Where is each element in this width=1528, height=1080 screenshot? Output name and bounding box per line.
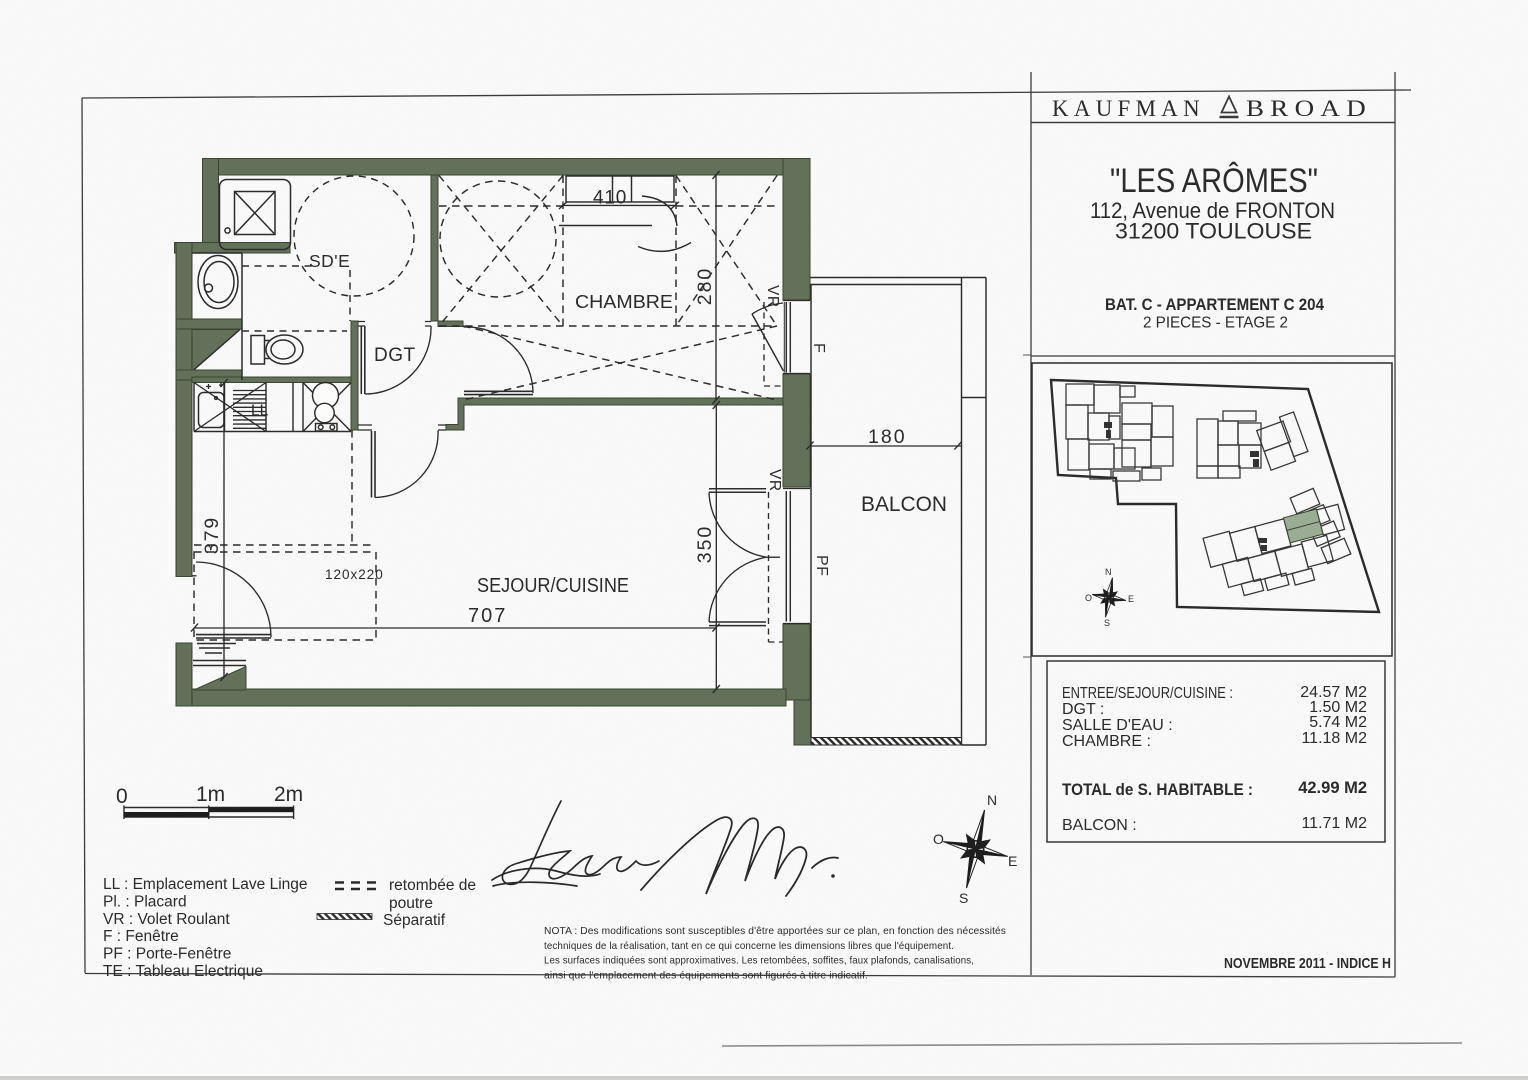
svg-text:11.18 M2: 11.18 M2 bbox=[1301, 730, 1367, 747]
svg-text:VR: VR bbox=[766, 469, 783, 492]
svg-text:350: 350 bbox=[694, 525, 716, 564]
svg-text:707: 707 bbox=[468, 605, 507, 627]
svg-text:NOVEMBRE 2011 - INDICE H: NOVEMBRE 2011 - INDICE H bbox=[1224, 955, 1391, 972]
svg-text:TE : Tableau Electrique: TE : Tableau Electrique bbox=[103, 963, 263, 980]
svg-text:O: O bbox=[933, 831, 944, 847]
svg-text:PF : Porte-Fenêtre: PF : Porte-Fenêtre bbox=[103, 946, 231, 963]
svg-text:379: 379 bbox=[201, 516, 223, 555]
svg-text:E: E bbox=[1008, 853, 1017, 869]
svg-text:retombée de: retombée de bbox=[389, 877, 476, 894]
svg-text:Séparatif: Séparatif bbox=[383, 912, 446, 929]
svg-text:ENTREE/SEJOUR/CUISINE :: ENTREE/SEJOUR/CUISINE : bbox=[1062, 685, 1233, 702]
svg-text:280: 280 bbox=[694, 267, 716, 306]
svg-text:LL: LL bbox=[251, 403, 269, 420]
svg-text:CHAMBRE :: CHAMBRE : bbox=[1062, 733, 1151, 750]
svg-text:SALLE D'EAU :: SALLE D'EAU : bbox=[1062, 717, 1173, 734]
svg-text:120x220: 120x220 bbox=[325, 567, 384, 582]
svg-text:PF: PF bbox=[813, 555, 830, 576]
svg-text:31200 TOULOUSE: 31200 TOULOUSE bbox=[1115, 219, 1312, 244]
svg-text:BROAD: BROAD bbox=[1246, 96, 1372, 122]
svg-text:180: 180 bbox=[868, 426, 907, 448]
svg-text:SEJOUR/CUISINE: SEJOUR/CUISINE bbox=[477, 575, 629, 597]
svg-text:E: E bbox=[1128, 594, 1134, 604]
svg-text:1m: 1m bbox=[196, 783, 225, 806]
svg-text:TOTAL de S. HABITABLE :: TOTAL de S. HABITABLE : bbox=[1062, 781, 1253, 799]
svg-text:F : Fenêtre: F : Fenêtre bbox=[103, 928, 179, 945]
svg-text:"LES ARÔMES": "LES ARÔMES" bbox=[1110, 162, 1318, 200]
svg-text:0: 0 bbox=[116, 785, 128, 808]
svg-text:Pl. : Placard: Pl. : Placard bbox=[103, 893, 187, 910]
svg-text:VR: VR bbox=[764, 285, 781, 308]
svg-text:2 PIECES - ETAGE 2: 2 PIECES - ETAGE 2 bbox=[1143, 315, 1288, 332]
svg-text:DGT :: DGT : bbox=[1062, 701, 1104, 718]
svg-text:42.99 M2: 42.99 M2 bbox=[1298, 779, 1367, 797]
svg-text:BALCON: BALCON bbox=[861, 492, 947, 516]
svg-text:SD'E: SD'E bbox=[309, 251, 350, 271]
svg-text:N: N bbox=[987, 792, 997, 808]
svg-text:ainsi que l'emplacement des éq: ainsi que l'emplacement des équipements … bbox=[544, 970, 868, 981]
svg-text:410: 410 bbox=[593, 188, 627, 209]
svg-text:NOTA : Des modifications sont: NOTA : Des modifications sont susceptibl… bbox=[544, 926, 1006, 937]
svg-text:S: S bbox=[959, 890, 968, 906]
svg-text:BAT. C - APPARTEMENT C 204: BAT. C - APPARTEMENT C 204 bbox=[1105, 296, 1325, 314]
svg-text:O: O bbox=[1085, 593, 1092, 603]
svg-text:techniques de la réalisation,: techniques de la réalisation, tant en ce… bbox=[544, 941, 954, 952]
svg-text:BALCON :: BALCON : bbox=[1062, 817, 1137, 834]
svg-text:2m: 2m bbox=[274, 783, 303, 806]
svg-text:N: N bbox=[1105, 567, 1112, 577]
svg-text:KAUFMAN: KAUFMAN bbox=[1052, 96, 1205, 122]
svg-text:F: F bbox=[810, 343, 827, 353]
svg-text:poutre: poutre bbox=[389, 895, 433, 912]
svg-text:Les surfaces indiquées sont ap: Les surfaces indiquées sont approximativ… bbox=[544, 956, 974, 967]
svg-text:11.71 M2: 11.71 M2 bbox=[1301, 815, 1367, 832]
svg-text:LL : Emplacement Lave Linge: LL : Emplacement Lave Linge bbox=[103, 876, 308, 893]
svg-text:VR : Volet Roulant: VR : Volet Roulant bbox=[103, 911, 230, 928]
svg-text:CHAMBRE: CHAMBRE bbox=[575, 291, 673, 312]
svg-text:S: S bbox=[1104, 618, 1110, 628]
svg-text:5.74 M2: 5.74 M2 bbox=[1309, 714, 1367, 731]
svg-text:DGT: DGT bbox=[374, 345, 416, 366]
